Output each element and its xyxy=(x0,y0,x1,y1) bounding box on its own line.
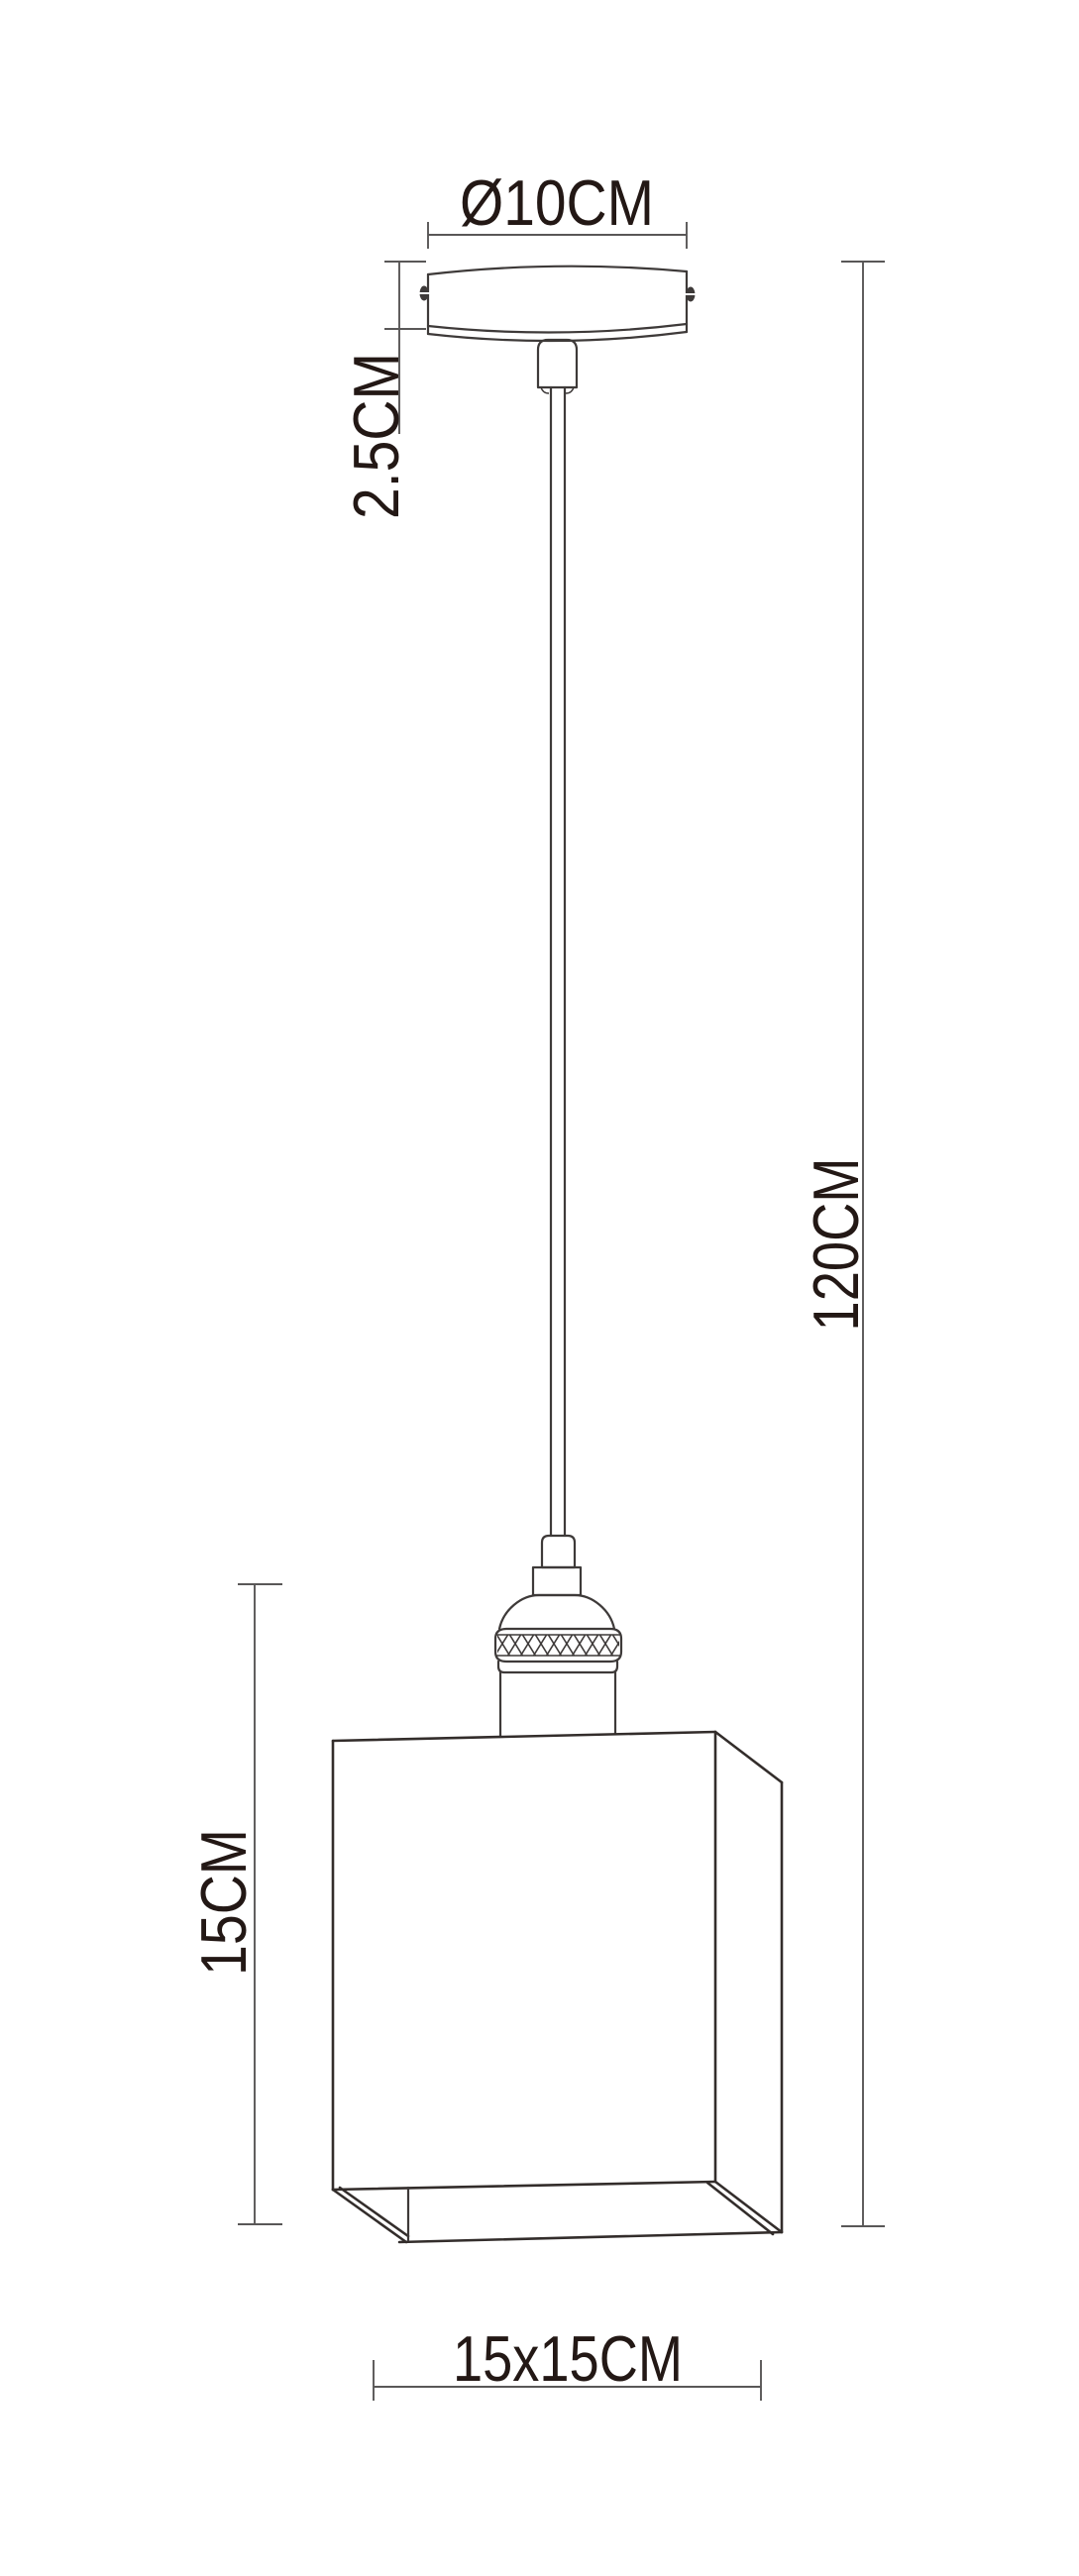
technical-drawing-canvas: Ø10CM 2.5CM 120CM 15CM 15x15CM xyxy=(0,0,1079,2576)
cube-shade xyxy=(333,1732,782,2242)
socket-dome xyxy=(499,1595,614,1629)
label-shade-footprint: 15x15CM xyxy=(453,2322,683,2395)
socket-neck xyxy=(533,1567,581,1595)
cord-grip xyxy=(542,1536,575,1567)
socket-body xyxy=(500,1672,615,1737)
label-canopy-height: 2.5CM xyxy=(340,353,412,519)
suspension-cord xyxy=(551,387,565,1536)
shade-bottom-right-edge xyxy=(707,2182,782,2234)
label-shade-height: 15CM xyxy=(187,1829,260,1976)
ceiling-canopy xyxy=(418,267,697,341)
socket-lip xyxy=(498,1662,617,1672)
canopy-stem xyxy=(538,340,577,393)
shade-bottom-left-edge xyxy=(333,2188,408,2242)
knurl-pattern xyxy=(497,1635,619,1656)
dimension-labels: Ø10CM 2.5CM 120CM 15CM 15x15CM xyxy=(187,166,872,2395)
pendant-lamp-dimension-diagram: Ø10CM 2.5CM 120CM 15CM 15x15CM xyxy=(0,0,1079,2576)
label-canopy-diameter: Ø10CM xyxy=(460,166,654,239)
label-drop-height: 120CM xyxy=(800,1158,872,1332)
lamp-socket xyxy=(495,1536,621,1737)
shade-bottom-back-edge xyxy=(399,2232,782,2242)
